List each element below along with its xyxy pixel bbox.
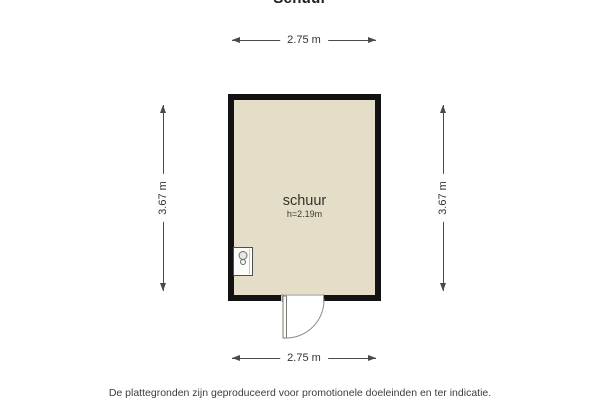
door-leaf	[283, 296, 287, 338]
page-title: Schuur	[0, 0, 600, 6]
arrow-up-icon	[440, 105, 446, 113]
boiler-fold-line	[249, 249, 250, 274]
floorplan-canvas: Schuur 2.75 m 2.75 m 3.67 m 3.67 m schuu…	[0, 0, 600, 400]
boiler-dial-small	[240, 259, 246, 265]
arrow-left-icon	[232, 37, 240, 43]
boiler-icon	[233, 247, 253, 276]
door-swing-arc	[287, 299, 325, 338]
footer-disclaimer: De plattegronden zijn geproduceerd voor …	[0, 387, 600, 399]
dimension-label: 2.75 m	[280, 352, 328, 364]
room-name: schuur	[234, 194, 375, 209]
room-ceiling-height: h=2.19m	[234, 209, 375, 220]
arrow-right-icon	[368, 37, 376, 43]
dimension-label: 3.67 m	[157, 174, 169, 222]
arrow-down-icon	[160, 283, 166, 291]
dimension-label: 3.67 m	[437, 174, 449, 222]
arrow-right-icon	[368, 355, 376, 361]
arrow-left-icon	[232, 355, 240, 361]
room-label: schuur h=2.19m	[234, 194, 375, 220]
arrow-up-icon	[160, 105, 166, 113]
arrow-down-icon	[440, 283, 446, 291]
dimension-label: 2.75 m	[280, 34, 328, 46]
